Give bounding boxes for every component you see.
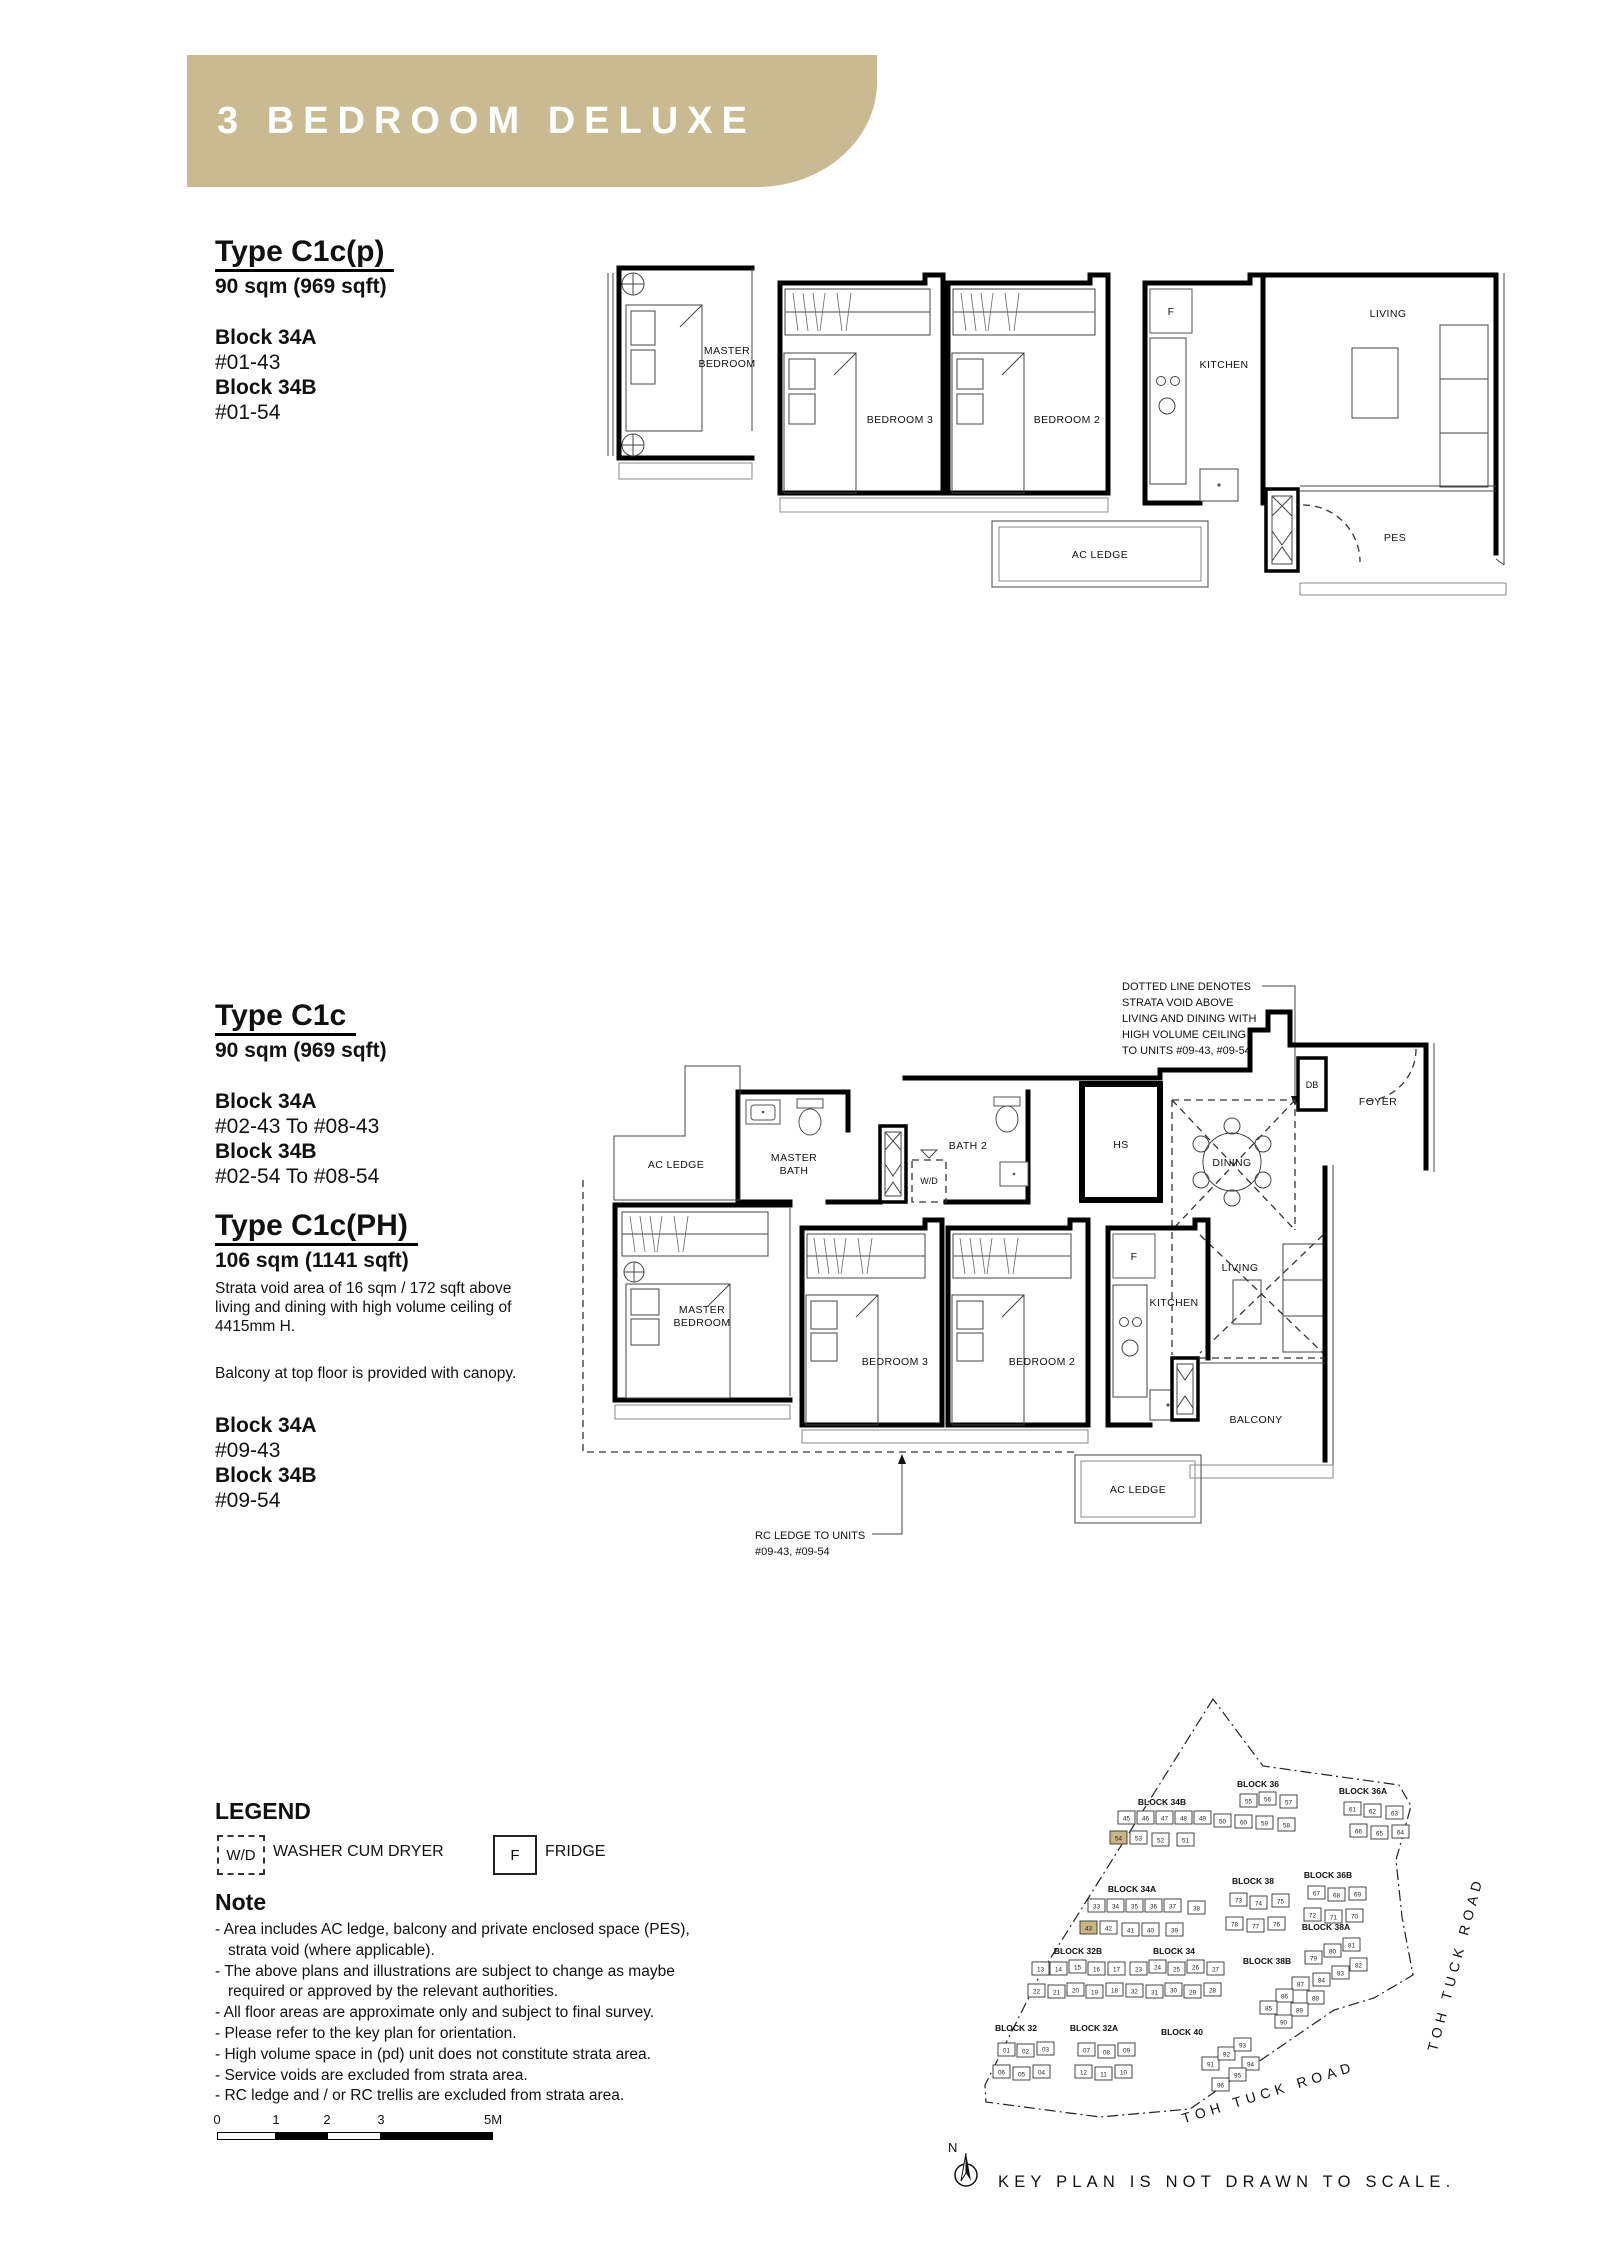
keyplan-unit-number: 47 xyxy=(1161,1816,1169,1823)
plan1-pes: PES xyxy=(1300,505,1506,595)
keyplan-unit-number: 25 xyxy=(1173,1967,1181,1974)
note-item: - Please refer to the key plan for orien… xyxy=(215,2024,855,2045)
keyplan-unit-number: 27 xyxy=(1212,1967,1220,1974)
svg-text:RC LEDGE TO UNITS: RC LEDGE TO UNITS xyxy=(755,1530,865,1542)
block-units: #02-54 To #08-54 xyxy=(215,1164,387,1189)
north-label: N xyxy=(948,2140,957,2155)
room-label-bedroom2: BEDROOM 2 xyxy=(1034,414,1101,426)
legend: LEGEND W/D WASHER CUM DRYER F FRIDGE Not… xyxy=(215,1798,855,2107)
keyplan-unit-number: 08 xyxy=(1103,2050,1111,2057)
plan1-bedroom2: BEDROOM 2 xyxy=(948,275,1108,493)
svg-text:#09-43, #09-54: #09-43, #09-54 xyxy=(755,1546,830,1558)
keyplan-unit-number: 29 xyxy=(1189,1990,1197,1997)
keyplan-unit-number: 49 xyxy=(1199,1816,1207,1823)
note-item: - RC ledge and / or RC trellis are exclu… xyxy=(215,2086,855,2107)
room-label-balcony: BALCONY xyxy=(1230,1414,1283,1426)
room-label-living: LIVING xyxy=(1370,308,1407,320)
block-name: Block 34B xyxy=(215,1139,387,1164)
keyplan-unit-number: 02 xyxy=(1022,2049,1030,2056)
keyplan-unit-number: 60 xyxy=(1240,1820,1248,1827)
keyplan-block-label: BLOCK 34B xyxy=(1138,1797,1186,1807)
keyplan-unit-number: 40 xyxy=(1147,1928,1155,1935)
keyplan-unit-number: 41 xyxy=(1127,1928,1135,1935)
keyplan-unit-number: 53 xyxy=(1135,1836,1143,1843)
room-label-bedroom2: BEDROOM 2 xyxy=(1009,1356,1076,1368)
keyplan-unit-number: 07 xyxy=(1083,2048,1091,2055)
plan2-bedroom2: BEDROOM 2 xyxy=(948,1220,1088,1425)
block-units: #09-43 xyxy=(215,1438,537,1463)
keyplan-unit-number: 33 xyxy=(1093,1904,1101,1911)
note-list: - Area includes AC ledge, balcony and pr… xyxy=(215,1920,855,2107)
plan1-bedroom3: BEDROOM 3 xyxy=(780,275,943,493)
fridge-legend-symbol: F xyxy=(493,1835,537,1875)
room-label-bedroom3: BEDROOM 3 xyxy=(867,414,934,426)
block-name: Block 34A xyxy=(215,1413,537,1438)
plan2-bedroom3: BEDROOM 3 xyxy=(802,1220,942,1425)
type-c1c-area: 90 sqm (969 sqft) xyxy=(215,1039,387,1063)
floorplan-page: 3 BEDROOM DELUXE Type C1c(p) 90 sqm (969… xyxy=(0,0,1600,2263)
floorplan-type-c1c: DOTTED LINE DENOTES STRATA VOID ABOVE LI… xyxy=(550,950,1450,1615)
svg-text:BEDROOM: BEDROOM xyxy=(673,1317,730,1329)
keyplan-unit-number: 77 xyxy=(1252,1924,1260,1931)
fridge-legend-label: FRIDGE xyxy=(545,1843,605,1861)
room-label-bath2: BATH 2 xyxy=(949,1140,987,1152)
note-title: Note xyxy=(215,1889,855,1916)
keyplan-unit-number: 92 xyxy=(1223,2052,1231,2059)
keyplan-unit-number: 18 xyxy=(1111,1988,1119,1995)
keyplan-unit-number: 16 xyxy=(1093,1967,1101,1974)
legend-row: W/D WASHER CUM DRYER F FRIDGE xyxy=(215,1825,855,1871)
keyplan-unit-number: 12 xyxy=(1080,2070,1088,2077)
keyplan-block-label: BLOCK 34 xyxy=(1153,1946,1195,1956)
fridge-symbol: F xyxy=(1131,1251,1138,1263)
keyplan-unit-number: 79 xyxy=(1310,1956,1318,1963)
keyplan-unit-number: 03 xyxy=(1042,2047,1050,2054)
block-name: Block 34A xyxy=(215,325,394,350)
keyplan-unit-number: 94 xyxy=(1247,2062,1255,2069)
plan2-master-bath: MASTER BATH xyxy=(746,1099,823,1177)
room-label-hs: HS xyxy=(1113,1139,1128,1151)
strata-void-note: Strata void area of 16 sqm / 172 sqft ab… xyxy=(215,1279,537,1336)
keyplan-unit-number: 14 xyxy=(1055,1967,1063,1974)
keyplan-unit-number: 57 xyxy=(1285,1800,1293,1807)
road-label-right: TOH TUCK ROAD xyxy=(1424,1875,1486,2053)
keyplan-unit-number: 23 xyxy=(1135,1967,1143,1974)
keyplan-unit-number: 56 xyxy=(1264,1797,1272,1804)
plan2-ac-ledge-bottom: AC LEDGE xyxy=(1075,1455,1201,1523)
keyplan-unit-number: 54 xyxy=(1115,1836,1123,1843)
svg-text:DOTTED LINE DENOTES: DOTTED LINE DENOTES xyxy=(1122,981,1251,993)
keyplan-unit-number: 09 xyxy=(1123,2048,1131,2055)
keyplan-unit-number: 38 xyxy=(1193,1906,1201,1913)
keyplan-unit-number: 73 xyxy=(1235,1898,1243,1905)
keyplan-blocks: BLOCK 34B45464748495054535251BLOCK 36555… xyxy=(993,1779,1409,2091)
keyplan-unit-number: 86 xyxy=(1281,1994,1289,2001)
keyplan-unit-number: 43 xyxy=(1085,1926,1093,1933)
room-label-pes: PES xyxy=(1384,532,1406,544)
room-label-living: LIVING xyxy=(1222,1262,1259,1274)
fridge-symbol: F xyxy=(1168,306,1175,318)
note-item: - Area includes AC ledge, balcony and pr… xyxy=(215,1920,855,1941)
note-item: - The above plans and illustrations are … xyxy=(215,1962,855,1983)
block-name: Block 34B xyxy=(215,1463,537,1488)
keyplan-unit-number: 62 xyxy=(1369,1809,1377,1816)
keyplan-unit-number: 26 xyxy=(1192,1965,1200,1972)
type-c1c-info: Type C1c 90 sqm (969 sqft) Block 34A #02… xyxy=(215,1000,387,1189)
keyplan-block-label: BLOCK 36A xyxy=(1339,1786,1387,1796)
block-name: Block 34A xyxy=(215,1089,387,1114)
block-units: #02-43 To #08-43 xyxy=(215,1114,387,1139)
keyplan-unit-number: 35 xyxy=(1131,1904,1139,1911)
keyplan-unit-number: 90 xyxy=(1280,2020,1288,2027)
db-label: DB xyxy=(1306,1080,1319,1090)
svg-text:HIGH VOLUME CEILING: HIGH VOLUME CEILING xyxy=(1122,1029,1246,1041)
keyplan-unit-number: 95 xyxy=(1234,2073,1242,2080)
plan2-wd: W/D xyxy=(912,1150,946,1202)
room-label-ac-ledge: AC LEDGE xyxy=(648,1159,704,1171)
keyplan-block-label: BLOCK 40 xyxy=(1161,2027,1203,2037)
plan2-shaft-living xyxy=(1172,1358,1198,1420)
keyplan-unit-number: 88 xyxy=(1312,1996,1320,2003)
page-title: 3 BEDROOM DELUXE xyxy=(187,100,756,143)
keyplan-unit-number: 28 xyxy=(1209,1988,1217,1995)
keyplan-unit-number: 01 xyxy=(1003,2048,1011,2055)
block-units: #09-54 xyxy=(215,1488,537,1513)
keyplan-unit-number: 68 xyxy=(1333,1893,1341,1900)
keyplan-unit-number: 48 xyxy=(1180,1816,1188,1823)
keyplan-unit-number: 61 xyxy=(1349,1807,1357,1814)
type-c1c-blocks: Block 34A #02-43 To #08-43 Block 34B #02… xyxy=(215,1089,387,1189)
keyplan-unit-number: 39 xyxy=(1171,1928,1179,1935)
keyplan-unit-number: 10 xyxy=(1120,2070,1128,2077)
type-c1cph-info: Type C1c(PH) 106 sqm (1141 sqft) Strata … xyxy=(215,1210,537,1513)
plan2-shaft xyxy=(880,1126,906,1202)
key-plan: BLOCK 34B45464748495054535251BLOCK 36555… xyxy=(940,1665,1600,2210)
svg-text:STRATA VOID ABOVE: STRATA VOID ABOVE xyxy=(1122,997,1233,1009)
room-label-master-bedroom: MASTER xyxy=(704,345,750,357)
keyplan-unit-number: 78 xyxy=(1231,1922,1239,1929)
keyplan-unit-number: 50 xyxy=(1219,1819,1227,1826)
keyplan-unit-number: 74 xyxy=(1255,1901,1263,1908)
keyplan-unit-number: 32 xyxy=(1131,1989,1139,1996)
keyplan-unit-number: 65 xyxy=(1376,1831,1384,1838)
room-label-kitchen: KITCHEN xyxy=(1200,359,1249,371)
keyplan-unit-number: 31 xyxy=(1151,1990,1159,1997)
keyplan-unit-number: 45 xyxy=(1123,1816,1131,1823)
note-item: - Service voids are excluded from strata… xyxy=(215,2066,855,2087)
keyplan-unit-number: 13 xyxy=(1037,1967,1045,1974)
keyplan-unit-number: 67 xyxy=(1313,1891,1321,1898)
title-banner: 3 BEDROOM DELUXE xyxy=(187,55,877,187)
plan2-entry: DB FOYER xyxy=(1298,1049,1416,1110)
type-c1c-title: Type C1c xyxy=(215,1000,356,1036)
keyplan-unit-number: 37 xyxy=(1169,1904,1177,1911)
keyplan-unit-number: 42 xyxy=(1105,1926,1113,1933)
keyplan-block-label: BLOCK 32 xyxy=(995,2023,1037,2033)
keyplan-unit-number: 20 xyxy=(1072,1988,1080,1995)
keyplan-block-label: BLOCK 34A xyxy=(1108,1884,1156,1894)
keyplan-unit-number: 91 xyxy=(1207,2062,1215,2069)
type-c1cph-title: Type C1c(PH) xyxy=(215,1210,418,1246)
note-item: required or approved by the relevant aut… xyxy=(215,1982,855,2003)
keyplan-unit-number: 63 xyxy=(1391,1811,1399,1818)
floorplan-type-c1cp: MASTER BEDROOM BEDROOM 3 BED xyxy=(600,253,1360,603)
keyplan-unit-number: 51 xyxy=(1182,1838,1190,1845)
keyplan-block-label: BLOCK 36 xyxy=(1237,1779,1279,1789)
room-label-dining: DINING xyxy=(1212,1157,1251,1169)
keyplan-unit-number: 89 xyxy=(1296,2008,1304,2015)
keyplan-unit-number: 52 xyxy=(1157,1838,1165,1845)
keyplan-unit-number: 69 xyxy=(1354,1892,1362,1899)
keyplan-unit-number: 66 xyxy=(1355,1829,1363,1836)
type-c1cp-title: Type C1c(p) xyxy=(215,236,394,272)
room-label-kitchen: KITCHEN xyxy=(1150,1297,1199,1309)
scale-tick: 5M xyxy=(484,2112,502,2127)
keyplan-unit-number: 24 xyxy=(1154,1965,1162,1972)
plan1-kitchen: F KITCHEN xyxy=(1145,275,1263,503)
keyplan-footer: KEY PLAN IS NOT DRAWN TO SCALE. xyxy=(998,2173,1455,2191)
keyplan-unit-number: 15 xyxy=(1074,1965,1082,1972)
svg-text:BEDROOM: BEDROOM xyxy=(698,358,755,370)
keyplan-unit-number: 96 xyxy=(1217,2083,1225,2090)
keyplan-unit-number: 64 xyxy=(1397,1830,1405,1837)
keyplan-unit-number: 55 xyxy=(1245,1799,1253,1806)
keyplan-unit-number: 71 xyxy=(1330,1915,1338,1922)
type-c1cp-blocks: Block 34A #01-43 Block 34B #01-54 xyxy=(215,325,394,425)
block-name: Block 34B xyxy=(215,375,394,400)
svg-text:BATH: BATH xyxy=(780,1165,809,1177)
room-label-foyer: FOYER xyxy=(1359,1096,1397,1108)
wd-legend-symbol: W/D xyxy=(217,1835,265,1875)
keyplan-block-label: BLOCK 38B xyxy=(1243,1956,1291,1966)
svg-text:TO UNITS #09-43, #09-54: TO UNITS #09-43, #09-54 xyxy=(1122,1045,1251,1057)
svg-text:LIVING AND DINING WITH: LIVING AND DINING WITH xyxy=(1122,1013,1257,1025)
room-label-master-bath: MASTER xyxy=(771,1152,817,1164)
keyplan-block-label: BLOCK 38 xyxy=(1232,1876,1274,1886)
plan2-bath2: BATH 2 xyxy=(949,1097,1028,1186)
scale-tick: 1 xyxy=(272,2112,279,2127)
keyplan-unit-number: 84 xyxy=(1318,1978,1326,1985)
keyplan-unit-number: 22 xyxy=(1033,1989,1041,1996)
note-item: - All floor areas are approximate only a… xyxy=(215,2003,855,2024)
type-c1cph-area: 106 sqm (1141 sqft) xyxy=(215,1249,537,1273)
keyplan-block-label: BLOCK 32A xyxy=(1070,2023,1118,2033)
room-label-ac-ledge: AC LEDGE xyxy=(1110,1484,1166,1496)
keyplan-block-label: BLOCK 32B xyxy=(1054,1946,1102,1956)
plan1-master-bedroom: MASTER BEDROOM xyxy=(608,268,756,479)
keyplan-unit-number: 81 xyxy=(1348,1943,1356,1950)
plan2-hs: HS xyxy=(1082,1084,1160,1200)
keyplan-unit-number: 87 xyxy=(1297,1982,1305,1989)
scale-tick: 0 xyxy=(213,2112,220,2127)
balcony-note: Balcony at top floor is provided with ca… xyxy=(215,1364,537,1383)
rc-ledge-outline xyxy=(583,1180,1078,1452)
keyplan-unit-number: 72 xyxy=(1309,1913,1317,1920)
keyplan-unit-number: 70 xyxy=(1351,1914,1359,1921)
plan1-ledge xyxy=(780,498,1108,512)
north-compass: N xyxy=(948,2140,977,2186)
wd-legend-label: WASHER CUM DRYER xyxy=(273,1843,444,1861)
plan2-balcony: BALCONY xyxy=(1190,1358,1333,1478)
note-item: - High volume space in (pd) unit does no… xyxy=(215,2045,855,2066)
keyplan-unit-number: 75 xyxy=(1277,1899,1285,1906)
plan1-shaft xyxy=(1266,489,1298,571)
scale-bar: 0 1 2 3 5M xyxy=(215,2112,515,2152)
type-c1cp-area: 90 sqm (969 sqft) xyxy=(215,275,394,299)
wd-symbol: W/D xyxy=(920,1176,938,1186)
plan2-ac-ledge-top: AC LEDGE xyxy=(614,1066,740,1200)
keyplan-unit-number: 83 xyxy=(1337,1971,1345,1978)
type-c1cp-info: Type C1c(p) 90 sqm (969 sqft) Block 34A … xyxy=(215,236,394,425)
keyplan-unit-number: 93 xyxy=(1239,2043,1247,2050)
rc-ledge-annotation: RC LEDGE TO UNITS #09-43, #09-54 xyxy=(755,1454,906,1558)
block-units: #01-54 xyxy=(215,400,394,425)
type-c1cph-blocks: Block 34A #09-43 Block 34B #09-54 xyxy=(215,1413,537,1513)
keyplan-unit-number: 36 xyxy=(1150,1904,1158,1911)
legend-title: LEGEND xyxy=(215,1798,855,1825)
keyplan-unit-number: 76 xyxy=(1273,1922,1281,1929)
keyplan-unit-number: 06 xyxy=(998,2070,1006,2077)
keyplan-unit-number: 11 xyxy=(1100,2072,1107,2079)
keyplan-block-label: BLOCK 38A xyxy=(1302,1922,1350,1932)
room-label-master-bedroom: MASTER xyxy=(679,1304,725,1316)
scale-tick: 2 xyxy=(323,2112,330,2127)
keyplan-unit-number: 58 xyxy=(1283,1823,1291,1830)
keyplan-block-label: BLOCK 36B xyxy=(1304,1870,1352,1880)
keyplan-unit-number: 30 xyxy=(1170,1988,1178,1995)
keyplan-unit-number: 19 xyxy=(1091,1990,1099,1997)
room-label-ac-ledge: AC LEDGE xyxy=(1072,549,1128,561)
plan2-master-bedroom: MASTER BEDROOM xyxy=(615,1205,790,1419)
keyplan-unit-number: 21 xyxy=(1053,1990,1061,1997)
keyplan-unit-number: 80 xyxy=(1329,1949,1337,1956)
keyplan-unit-number: 82 xyxy=(1355,1963,1363,1970)
keyplan-unit-number: 85 xyxy=(1265,2006,1273,2013)
plan1-ac-ledge: AC LEDGE xyxy=(992,521,1208,587)
keyplan-unit-number: 34 xyxy=(1112,1904,1120,1911)
note-item: strata void (where applicable). xyxy=(215,1941,855,1962)
keyplan-unit-number: 04 xyxy=(1038,2070,1046,2077)
keyplan-unit-number: 46 xyxy=(1142,1816,1150,1823)
plan2-ledge xyxy=(802,1430,1088,1443)
keyplan-unit-number: 17 xyxy=(1113,1967,1121,1974)
block-units: #01-43 xyxy=(215,350,394,375)
scale-tick: 3 xyxy=(377,2112,384,2127)
keyplan-unit-number: 59 xyxy=(1261,1821,1269,1828)
keyplan-unit-number: 05 xyxy=(1018,2072,1026,2079)
room-label-bedroom3: BEDROOM 3 xyxy=(862,1356,929,1368)
